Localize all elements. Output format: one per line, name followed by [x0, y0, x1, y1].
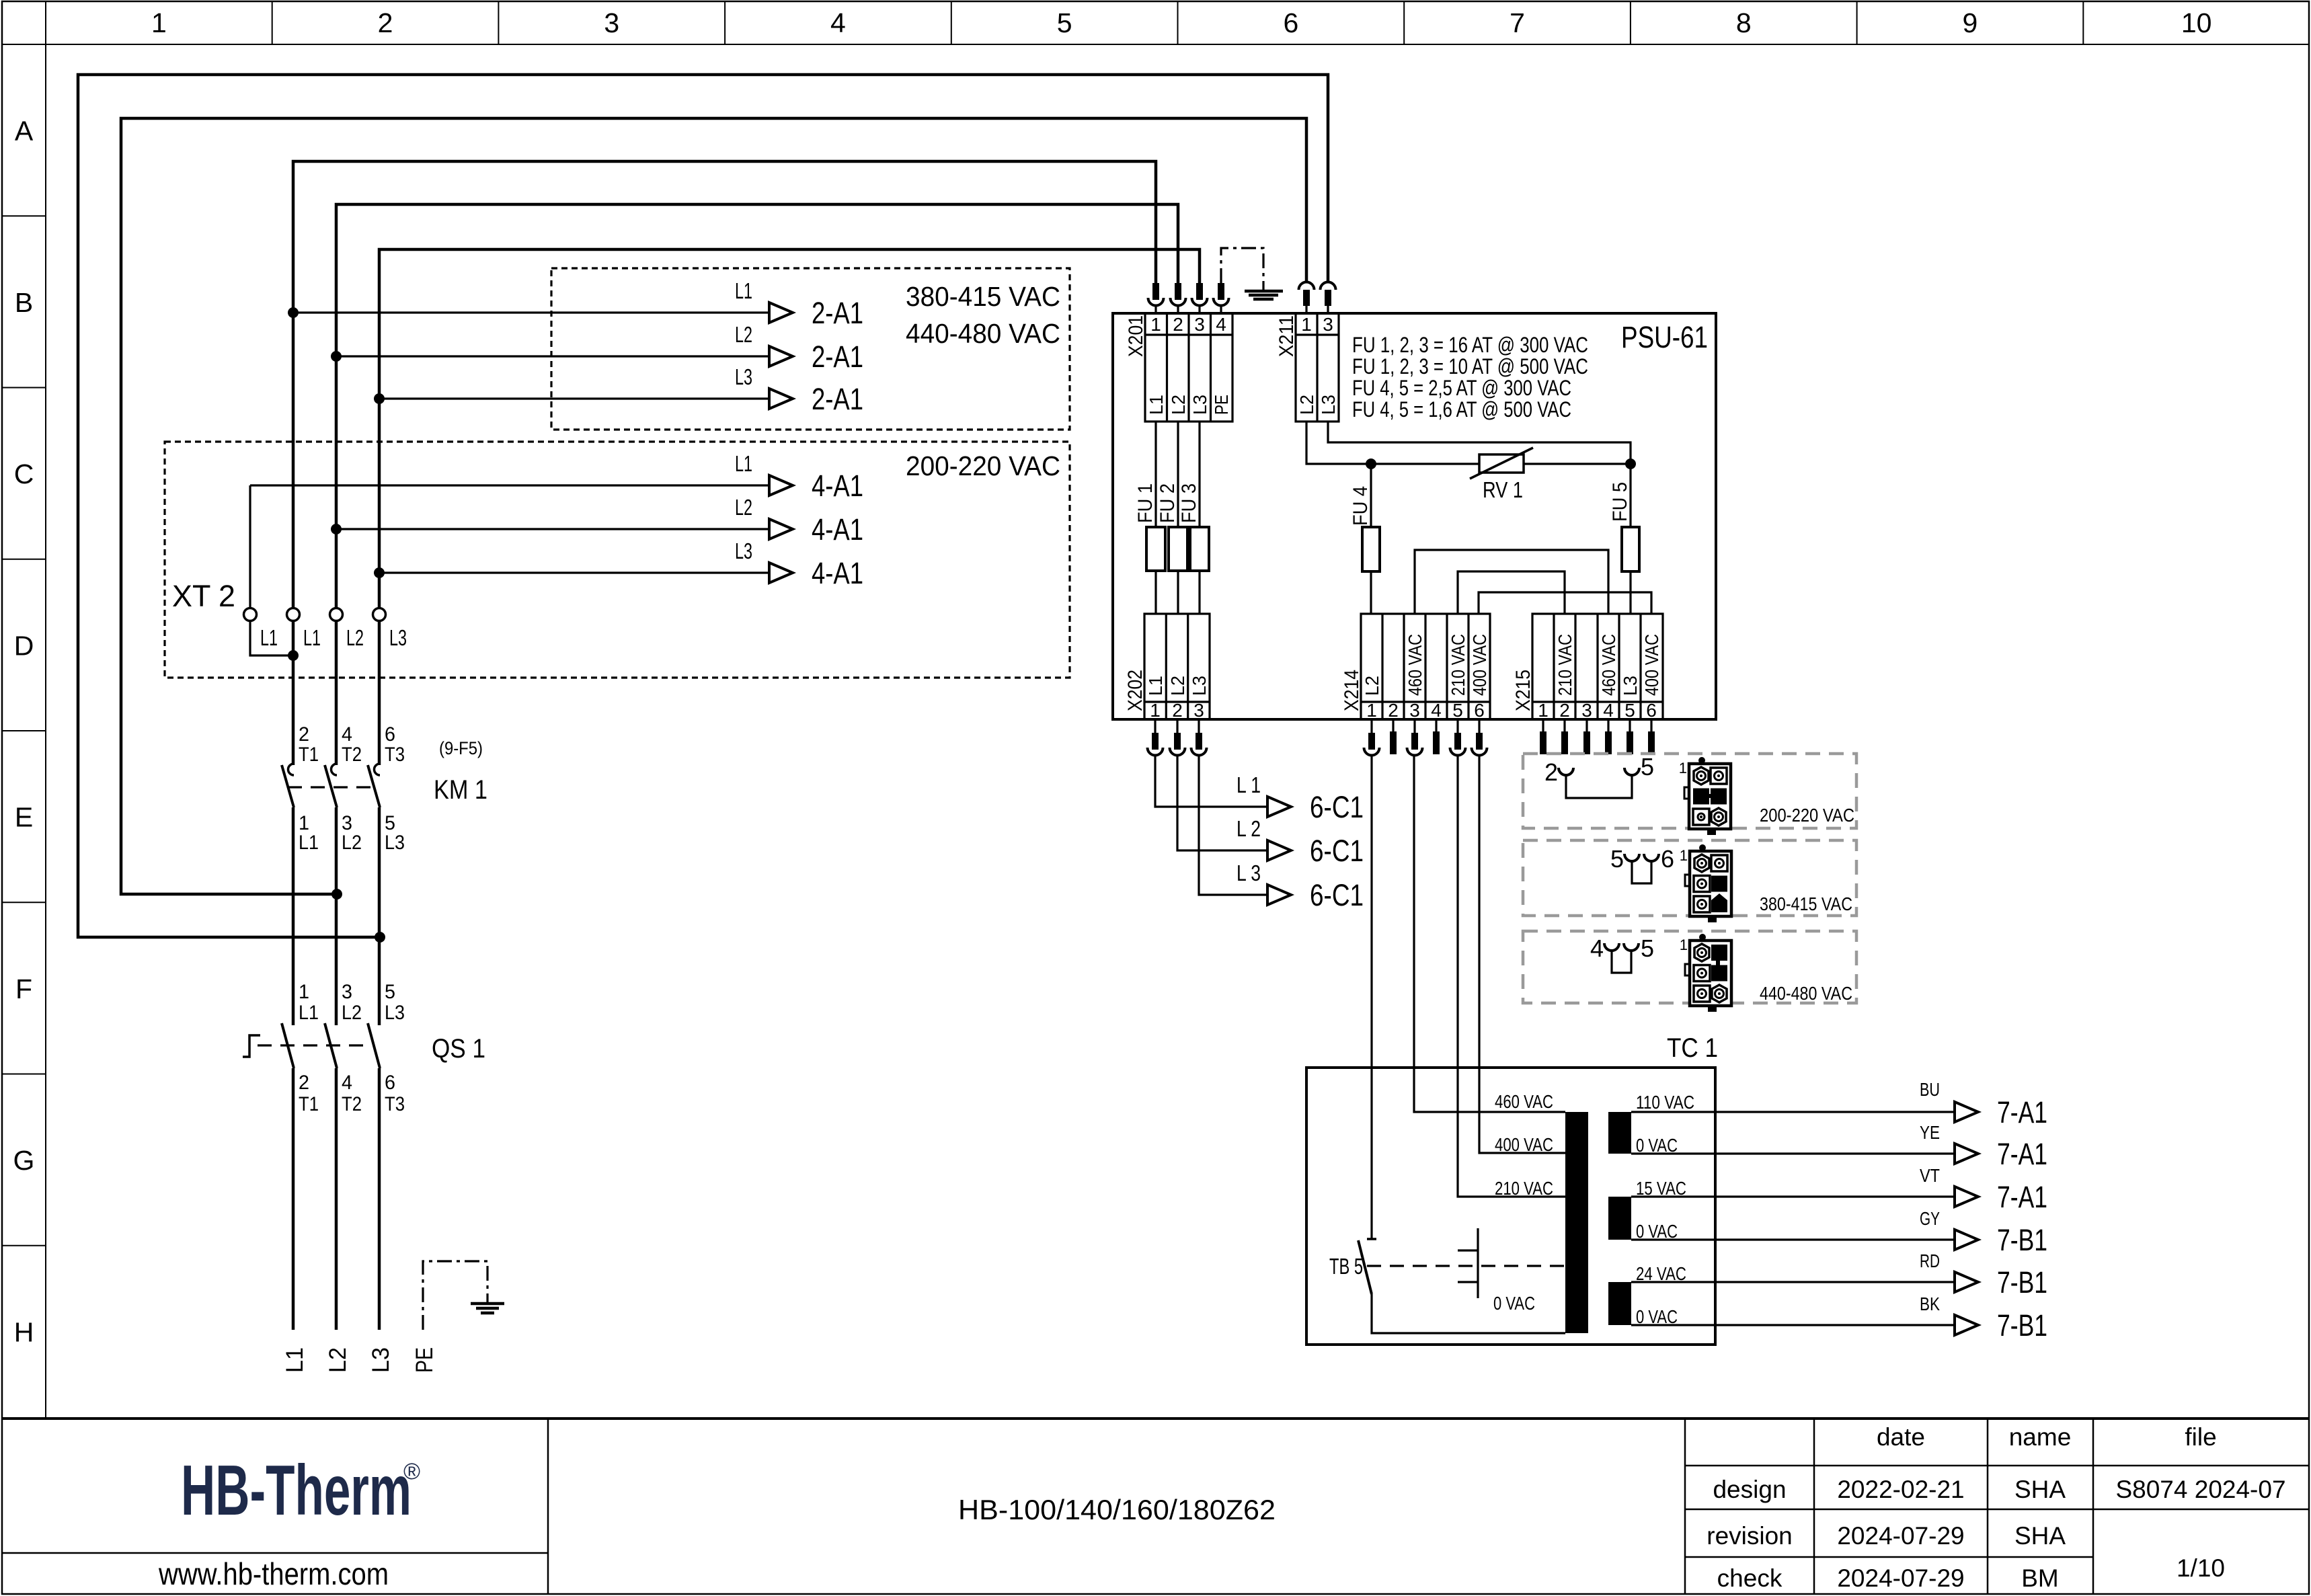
svg-text:C: C [14, 458, 34, 489]
svg-text:file: file [2185, 1423, 2216, 1451]
svg-text:6: 6 [1646, 700, 1657, 721]
svg-text:L1: L1 [1146, 395, 1167, 415]
svg-text:7-A1: 7-A1 [1997, 1095, 2047, 1129]
svg-text:L2: L2 [325, 1347, 351, 1373]
svg-text:4: 4 [342, 723, 352, 746]
svg-text:460 VAC: 460 VAC [1495, 1091, 1553, 1112]
svg-text:X215: X215 [1512, 670, 1534, 711]
svg-text:PE: PE [1211, 395, 1232, 415]
svg-text:X202: X202 [1124, 670, 1146, 711]
svg-text:7: 7 [1510, 7, 1525, 38]
svg-text:15 VAC: 15 VAC [1636, 1178, 1686, 1199]
svg-text:5: 5 [385, 981, 395, 1003]
svg-text:www.hb-therm.com: www.hb-therm.com [158, 1556, 389, 1591]
svg-text:6-C1: 6-C1 [1310, 790, 1364, 824]
svg-text:L2: L2 [346, 625, 364, 650]
svg-text:3: 3 [1194, 314, 1205, 335]
svg-text:design: design [1713, 1476, 1786, 1503]
svg-text:2: 2 [299, 1072, 309, 1094]
svg-text:2: 2 [1559, 700, 1570, 721]
svg-text:HB-100/140/160/180Z62: HB-100/140/160/180Z62 [958, 1494, 1276, 1525]
svg-text:A: A [15, 116, 34, 147]
svg-text:X201: X201 [1125, 315, 1147, 357]
svg-text:SHA: SHA [2014, 1476, 2066, 1503]
svg-text:210 VAC: 210 VAC [1495, 1178, 1553, 1199]
svg-text:KM 1: KM 1 [434, 775, 487, 805]
svg-text:L 2: L 2 [1237, 816, 1261, 841]
svg-text:6: 6 [1474, 700, 1485, 721]
svg-text:380-415 VAC: 380-415 VAC [906, 281, 1060, 312]
svg-text:FU 5: FU 5 [1609, 482, 1631, 522]
svg-text:F: F [15, 973, 32, 1004]
svg-text:FU 1, 2, 3 = 16 AT @ 300 VAC: FU 1, 2, 3 = 16 AT @ 300 VAC [1352, 333, 1588, 357]
svg-text:5: 5 [1641, 753, 1654, 781]
svg-text:L3: L3 [735, 538, 752, 563]
svg-text:6: 6 [385, 1072, 395, 1094]
svg-text:XT 2: XT 2 [172, 579, 235, 613]
svg-text:L 1: L 1 [1237, 772, 1261, 797]
svg-text:7-B1: 7-B1 [1997, 1308, 2047, 1343]
svg-text:FU 4, 5 = 2,5 AT @ 300 VAC: FU 4, 5 = 2,5 AT @ 300 VAC [1352, 376, 1571, 400]
svg-text:L1: L1 [299, 832, 319, 854]
svg-text:0 VAC: 0 VAC [1636, 1306, 1678, 1327]
svg-text:4: 4 [830, 7, 846, 38]
svg-text:B: B [15, 287, 33, 318]
svg-text:2-A1: 2-A1 [812, 296, 863, 330]
svg-text:L1: L1 [735, 278, 752, 303]
svg-text:PSU-61: PSU-61 [1621, 320, 1708, 354]
svg-text:T3: T3 [385, 744, 405, 766]
svg-text:H: H [14, 1316, 34, 1347]
svg-text:10: 10 [2181, 7, 2212, 38]
svg-text:check: check [1717, 1564, 1783, 1592]
svg-text:400 VAC: 400 VAC [1641, 634, 1662, 696]
svg-text:4: 4 [342, 1072, 352, 1094]
svg-text:L2: L2 [1167, 676, 1188, 696]
svg-text:2024-07-29: 2024-07-29 [1837, 1564, 1964, 1592]
svg-text:2: 2 [378, 7, 393, 38]
svg-text:5: 5 [1641, 934, 1654, 962]
svg-text:440-480 VAC: 440-480 VAC [906, 318, 1060, 349]
svg-text:3: 3 [342, 981, 352, 1003]
svg-text:7-B1: 7-B1 [1997, 1265, 2047, 1300]
svg-text:1: 1 [1150, 314, 1161, 335]
svg-text:200-220 VAC: 200-220 VAC [906, 450, 1060, 481]
svg-text:L 3: L 3 [1237, 861, 1261, 885]
svg-text:2-A1: 2-A1 [812, 340, 863, 374]
svg-text:L2: L2 [342, 1002, 362, 1024]
svg-text:1: 1 [1366, 700, 1377, 721]
svg-text:date: date [1877, 1423, 1925, 1451]
svg-text:5: 5 [1057, 7, 1072, 38]
svg-text:4: 4 [1431, 700, 1442, 721]
svg-text:210 VAC: 210 VAC [1448, 634, 1468, 696]
svg-text:4: 4 [1603, 700, 1614, 721]
svg-text:8: 8 [1736, 7, 1752, 38]
svg-text:HB-Therm: HB-Therm [181, 1451, 412, 1530]
svg-text:QS 1: QS 1 [432, 1034, 485, 1064]
svg-text:5: 5 [1624, 700, 1635, 721]
svg-text:2-A1: 2-A1 [812, 382, 863, 416]
svg-text:X211: X211 [1276, 315, 1298, 357]
svg-text:L3: L3 [385, 1002, 405, 1024]
svg-text:2: 2 [1388, 700, 1399, 721]
svg-text:GY: GY [1920, 1208, 1940, 1229]
svg-text:L3: L3 [385, 832, 405, 854]
svg-text:7-A1: 7-A1 [1997, 1137, 2047, 1171]
svg-text:1: 1 [1679, 760, 1687, 776]
svg-text:2: 2 [299, 723, 309, 746]
svg-text:200-220 VAC: 200-220 VAC [1760, 805, 1854, 826]
svg-text:460 VAC: 460 VAC [1405, 634, 1425, 696]
svg-text:6-C1: 6-C1 [1310, 834, 1364, 868]
svg-text:6: 6 [1283, 7, 1298, 38]
svg-text:1: 1 [151, 7, 167, 38]
svg-text:1: 1 [1150, 700, 1161, 721]
svg-text:1/10: 1/10 [2177, 1554, 2225, 1582]
svg-text:440-480 VAC: 440-480 VAC [1760, 983, 1852, 1004]
svg-text:4: 4 [1216, 314, 1226, 335]
svg-text:FU 1, 2, 3 = 10 AT @ 500 VAC: FU 1, 2, 3 = 10 AT @ 500 VAC [1352, 354, 1588, 378]
svg-text:L1: L1 [299, 1002, 319, 1024]
svg-text:210 VAC: 210 VAC [1555, 634, 1575, 696]
svg-text:4-A1: 4-A1 [812, 469, 863, 503]
svg-text:L3: L3 [735, 364, 752, 389]
svg-text:T3: T3 [385, 1093, 405, 1115]
svg-text:D: D [14, 630, 34, 661]
svg-text:FU 2: FU 2 [1157, 483, 1179, 523]
svg-text:1: 1 [1301, 314, 1312, 335]
svg-text:BK: BK [1920, 1293, 1940, 1314]
svg-text:BM: BM [2021, 1564, 2059, 1592]
svg-text:E: E [15, 802, 33, 833]
svg-text:L2: L2 [1296, 395, 1317, 415]
svg-text:X214: X214 [1341, 670, 1363, 711]
svg-text:(9-F5): (9-F5) [439, 738, 483, 758]
svg-text:4-A1: 4-A1 [812, 556, 863, 590]
svg-text:G: G [13, 1145, 35, 1176]
svg-text:T2: T2 [342, 744, 362, 766]
svg-text:3: 3 [1323, 314, 1333, 335]
svg-text:YE: YE [1920, 1122, 1940, 1143]
svg-text:4-A1: 4-A1 [812, 512, 863, 547]
svg-text:2022-02-21: 2022-02-21 [1837, 1476, 1964, 1503]
svg-text:TB 5: TB 5 [1329, 1254, 1363, 1279]
svg-text:L1: L1 [735, 451, 752, 476]
svg-text:1: 1 [1538, 700, 1549, 721]
svg-text:2: 2 [1173, 314, 1183, 335]
svg-text:24 VAC: 24 VAC [1636, 1263, 1686, 1284]
svg-text:L3: L3 [1318, 395, 1339, 415]
svg-text:L1: L1 [303, 625, 321, 650]
svg-text:7-A1: 7-A1 [1997, 1180, 2047, 1214]
svg-text:L2: L2 [1362, 676, 1382, 696]
svg-text:0 VAC: 0 VAC [1493, 1293, 1535, 1314]
svg-text:5: 5 [1610, 845, 1624, 873]
svg-text:0 VAC: 0 VAC [1636, 1221, 1678, 1242]
svg-text:FU 4, 5 = 1,6 AT @ 500 VAC: FU 4, 5 = 1,6 AT @ 500 VAC [1352, 397, 1571, 422]
svg-text:L3: L3 [1189, 676, 1210, 696]
svg-text:TC 1: TC 1 [1667, 1033, 1718, 1063]
svg-text:L3: L3 [368, 1347, 394, 1373]
svg-text:2: 2 [1172, 700, 1183, 721]
svg-text:name: name [2009, 1423, 2072, 1451]
svg-text:L2: L2 [1168, 395, 1189, 415]
svg-text:380-415 VAC: 380-415 VAC [1760, 893, 1852, 914]
svg-text:T1: T1 [299, 744, 319, 766]
svg-text:SHA: SHA [2014, 1522, 2066, 1550]
svg-text:6-C1: 6-C1 [1310, 878, 1364, 912]
svg-text:BU: BU [1920, 1079, 1940, 1100]
svg-text:7-B1: 7-B1 [1997, 1223, 2047, 1257]
svg-text:460 VAC: 460 VAC [1598, 634, 1619, 696]
svg-text:4: 4 [1590, 934, 1604, 962]
svg-text:L2: L2 [735, 495, 752, 520]
svg-text:S8074 2024-07: S8074 2024-07 [2115, 1476, 2285, 1503]
svg-text:9: 9 [1963, 7, 1978, 38]
svg-text:6: 6 [385, 723, 395, 746]
svg-text:L2: L2 [735, 322, 752, 347]
svg-text:1: 1 [1680, 847, 1688, 864]
svg-text:L1: L1 [260, 625, 278, 650]
svg-text:0 VAC: 0 VAC [1636, 1135, 1678, 1156]
svg-text:400 VAC: 400 VAC [1495, 1134, 1553, 1155]
svg-text:5: 5 [1452, 700, 1463, 721]
svg-text:VT: VT [1920, 1165, 1940, 1186]
svg-text:T2: T2 [342, 1093, 362, 1115]
svg-text:1: 1 [1680, 936, 1688, 953]
svg-text:FU 3: FU 3 [1178, 483, 1200, 523]
svg-text:L1: L1 [282, 1347, 308, 1373]
svg-text:2024-07-29: 2024-07-29 [1837, 1522, 1964, 1550]
svg-text:L1: L1 [1145, 676, 1166, 696]
svg-text:3: 3 [1193, 700, 1204, 721]
svg-text:6: 6 [1661, 845, 1674, 873]
svg-text:RD: RD [1920, 1250, 1940, 1271]
svg-text:2: 2 [1544, 758, 1558, 786]
svg-text:L3: L3 [389, 625, 407, 650]
svg-text:3: 3 [1409, 700, 1420, 721]
svg-text:400 VAC: 400 VAC [1469, 634, 1490, 696]
svg-text:110 VAC: 110 VAC [1636, 1092, 1694, 1113]
svg-text:FU 4: FU 4 [1349, 486, 1372, 526]
svg-text:RV 1: RV 1 [1483, 477, 1523, 502]
svg-text:L2: L2 [342, 832, 362, 854]
svg-text:L3: L3 [1620, 676, 1641, 696]
svg-text:T1: T1 [299, 1093, 319, 1115]
svg-text:revision: revision [1707, 1522, 1793, 1550]
svg-text:3: 3 [1581, 700, 1592, 721]
svg-text:3: 3 [604, 7, 619, 38]
svg-text:L3: L3 [1189, 395, 1210, 415]
svg-text:FU 1: FU 1 [1134, 483, 1157, 523]
svg-text:PE: PE [412, 1347, 438, 1373]
svg-text:®: ® [403, 1459, 420, 1484]
svg-text:1: 1 [299, 981, 309, 1003]
